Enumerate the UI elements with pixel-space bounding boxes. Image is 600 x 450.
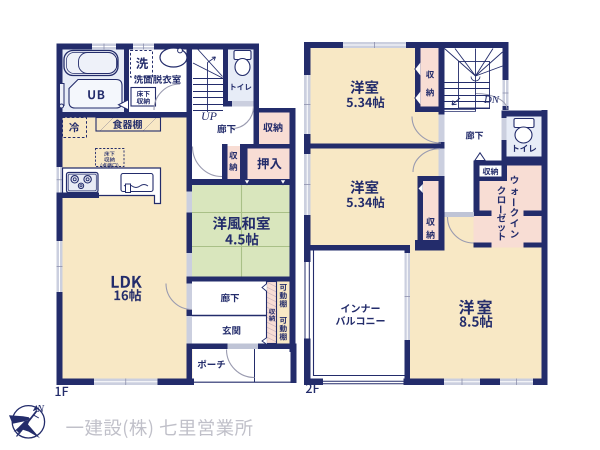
svg-text:UP: UP [201,109,218,123]
svg-text:N: N [36,404,45,415]
svg-text:DN: DN [483,94,500,106]
